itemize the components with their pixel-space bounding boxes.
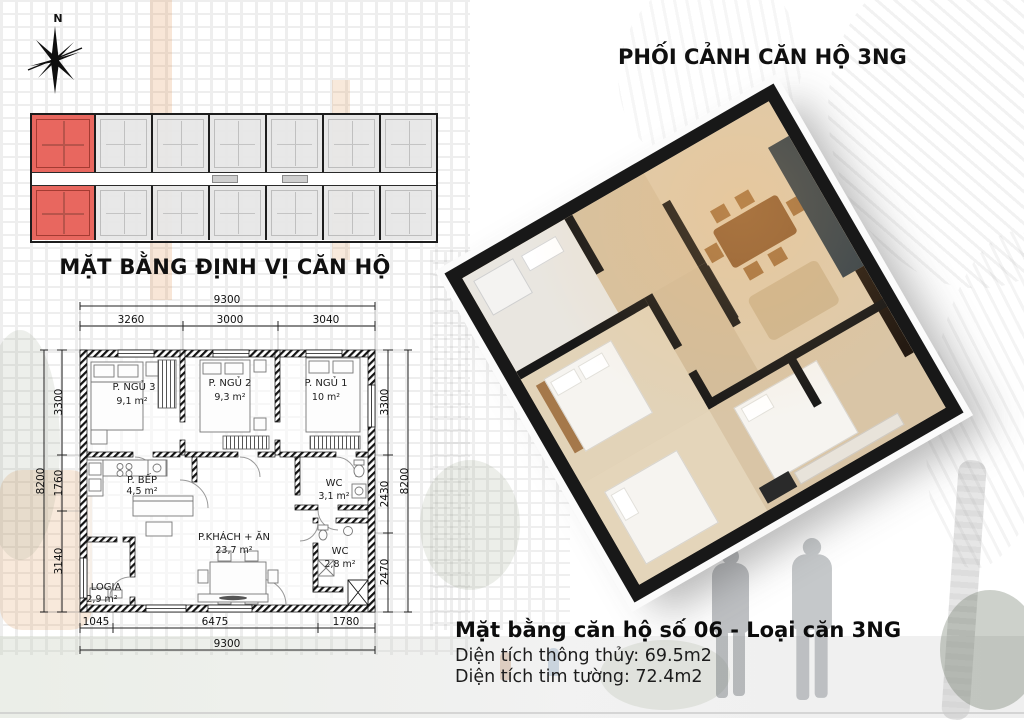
strip-row-bottom bbox=[32, 186, 436, 240]
strip-row-top bbox=[32, 115, 436, 172]
room-bedroom2-name: P. NGỦ 2 bbox=[209, 375, 252, 389]
unit-info-block: Mặt bằng căn hộ số 06 - Loại căn 3NG Diệ… bbox=[455, 618, 901, 688]
room-kitchen-area: 4,5 m² bbox=[126, 486, 157, 497]
dim-left-seg1: 3300 bbox=[53, 389, 65, 416]
unit-cell bbox=[208, 115, 265, 172]
dim-left-total: 8200 bbox=[35, 468, 47, 495]
room-wc2-area: 2,8 m² bbox=[324, 559, 355, 570]
dim-top-seg1: 3260 bbox=[118, 314, 145, 326]
dim-top-total: 9300 bbox=[214, 294, 241, 306]
unit-cell bbox=[151, 115, 208, 172]
room-bedroom2-area: 9,3 m² bbox=[214, 392, 245, 403]
room-wc2-name: WC bbox=[332, 546, 349, 557]
unit-info-title: Mặt bằng căn hộ số 06 - Loại căn 3NG bbox=[455, 618, 901, 644]
unit-cell bbox=[322, 115, 379, 172]
compass-north-label: N bbox=[53, 12, 62, 25]
dim-left-seg3: 3140 bbox=[53, 548, 65, 575]
room-kitchen-name: P. BẾP bbox=[127, 472, 157, 486]
unit-cell bbox=[265, 186, 322, 240]
dim-top-seg3: 3040 bbox=[313, 314, 340, 326]
room-wc1-area: 3,1 m² bbox=[318, 491, 349, 502]
perspective-title: PHỐI CẢNH CĂN HỘ 3NG bbox=[618, 45, 907, 69]
room-logia-name: LOGIA bbox=[91, 582, 122, 593]
highlighted-unit-bottom bbox=[32, 186, 94, 240]
room-living-name: P.KHÁCH + ĂN bbox=[198, 530, 270, 543]
dim-bottom-total: 9300 bbox=[214, 638, 241, 650]
unit-cell bbox=[208, 186, 265, 240]
unit-cell bbox=[265, 115, 322, 172]
floor-location-strip bbox=[30, 113, 438, 243]
dim-right-seg2: 2430 bbox=[379, 481, 391, 508]
unit-cell bbox=[322, 186, 379, 240]
floor-plan: 9300 3260 3000 3040 1045 6475 1780 9300 … bbox=[18, 290, 440, 675]
room-logia-area: 2,9 m² bbox=[86, 594, 117, 605]
unit-net-area: Diện tích thông thủy: 69.5m2 bbox=[455, 646, 901, 667]
dim-right-total: 8200 bbox=[399, 468, 411, 495]
unit-cell bbox=[379, 186, 436, 240]
strip-corridor bbox=[32, 172, 436, 186]
room-bedroom3-area: 9,1 m² bbox=[116, 396, 147, 407]
compass-icon: N bbox=[24, 10, 86, 102]
background-curb-line bbox=[0, 712, 1024, 714]
dim-right-seg3: 2470 bbox=[379, 559, 391, 586]
unit-cell bbox=[379, 115, 436, 172]
highlighted-unit-top bbox=[32, 115, 94, 172]
room-wc1-name: WC bbox=[326, 478, 343, 489]
room-bedroom3-name: P. NGỦ 3 bbox=[113, 379, 156, 393]
dim-left-seg2: 1760 bbox=[53, 470, 65, 497]
room-bedroom1-name: P. NGỦ 1 bbox=[305, 375, 348, 389]
dim-bottom-seg2: 6475 bbox=[202, 616, 229, 628]
dim-top-seg2: 3000 bbox=[217, 314, 244, 326]
room-bedroom1-area: 10 m² bbox=[312, 392, 340, 403]
dim-right-seg1: 3300 bbox=[379, 389, 391, 416]
location-plan-title: MẶT BẰNG ĐỊNH VỊ CĂN HỘ bbox=[58, 255, 392, 279]
dim-bottom-seg3: 1780 bbox=[333, 616, 360, 628]
room-living-area: 23,7 m² bbox=[215, 545, 252, 556]
page: N bbox=[0, 0, 1024, 723]
unit-cell bbox=[151, 186, 208, 240]
unit-gross-area: Diện tích tim tường: 72.4m2 bbox=[455, 667, 901, 688]
dim-bottom-seg1: 1045 bbox=[83, 616, 110, 628]
unit-cell bbox=[94, 115, 151, 172]
unit-cell bbox=[94, 186, 151, 240]
